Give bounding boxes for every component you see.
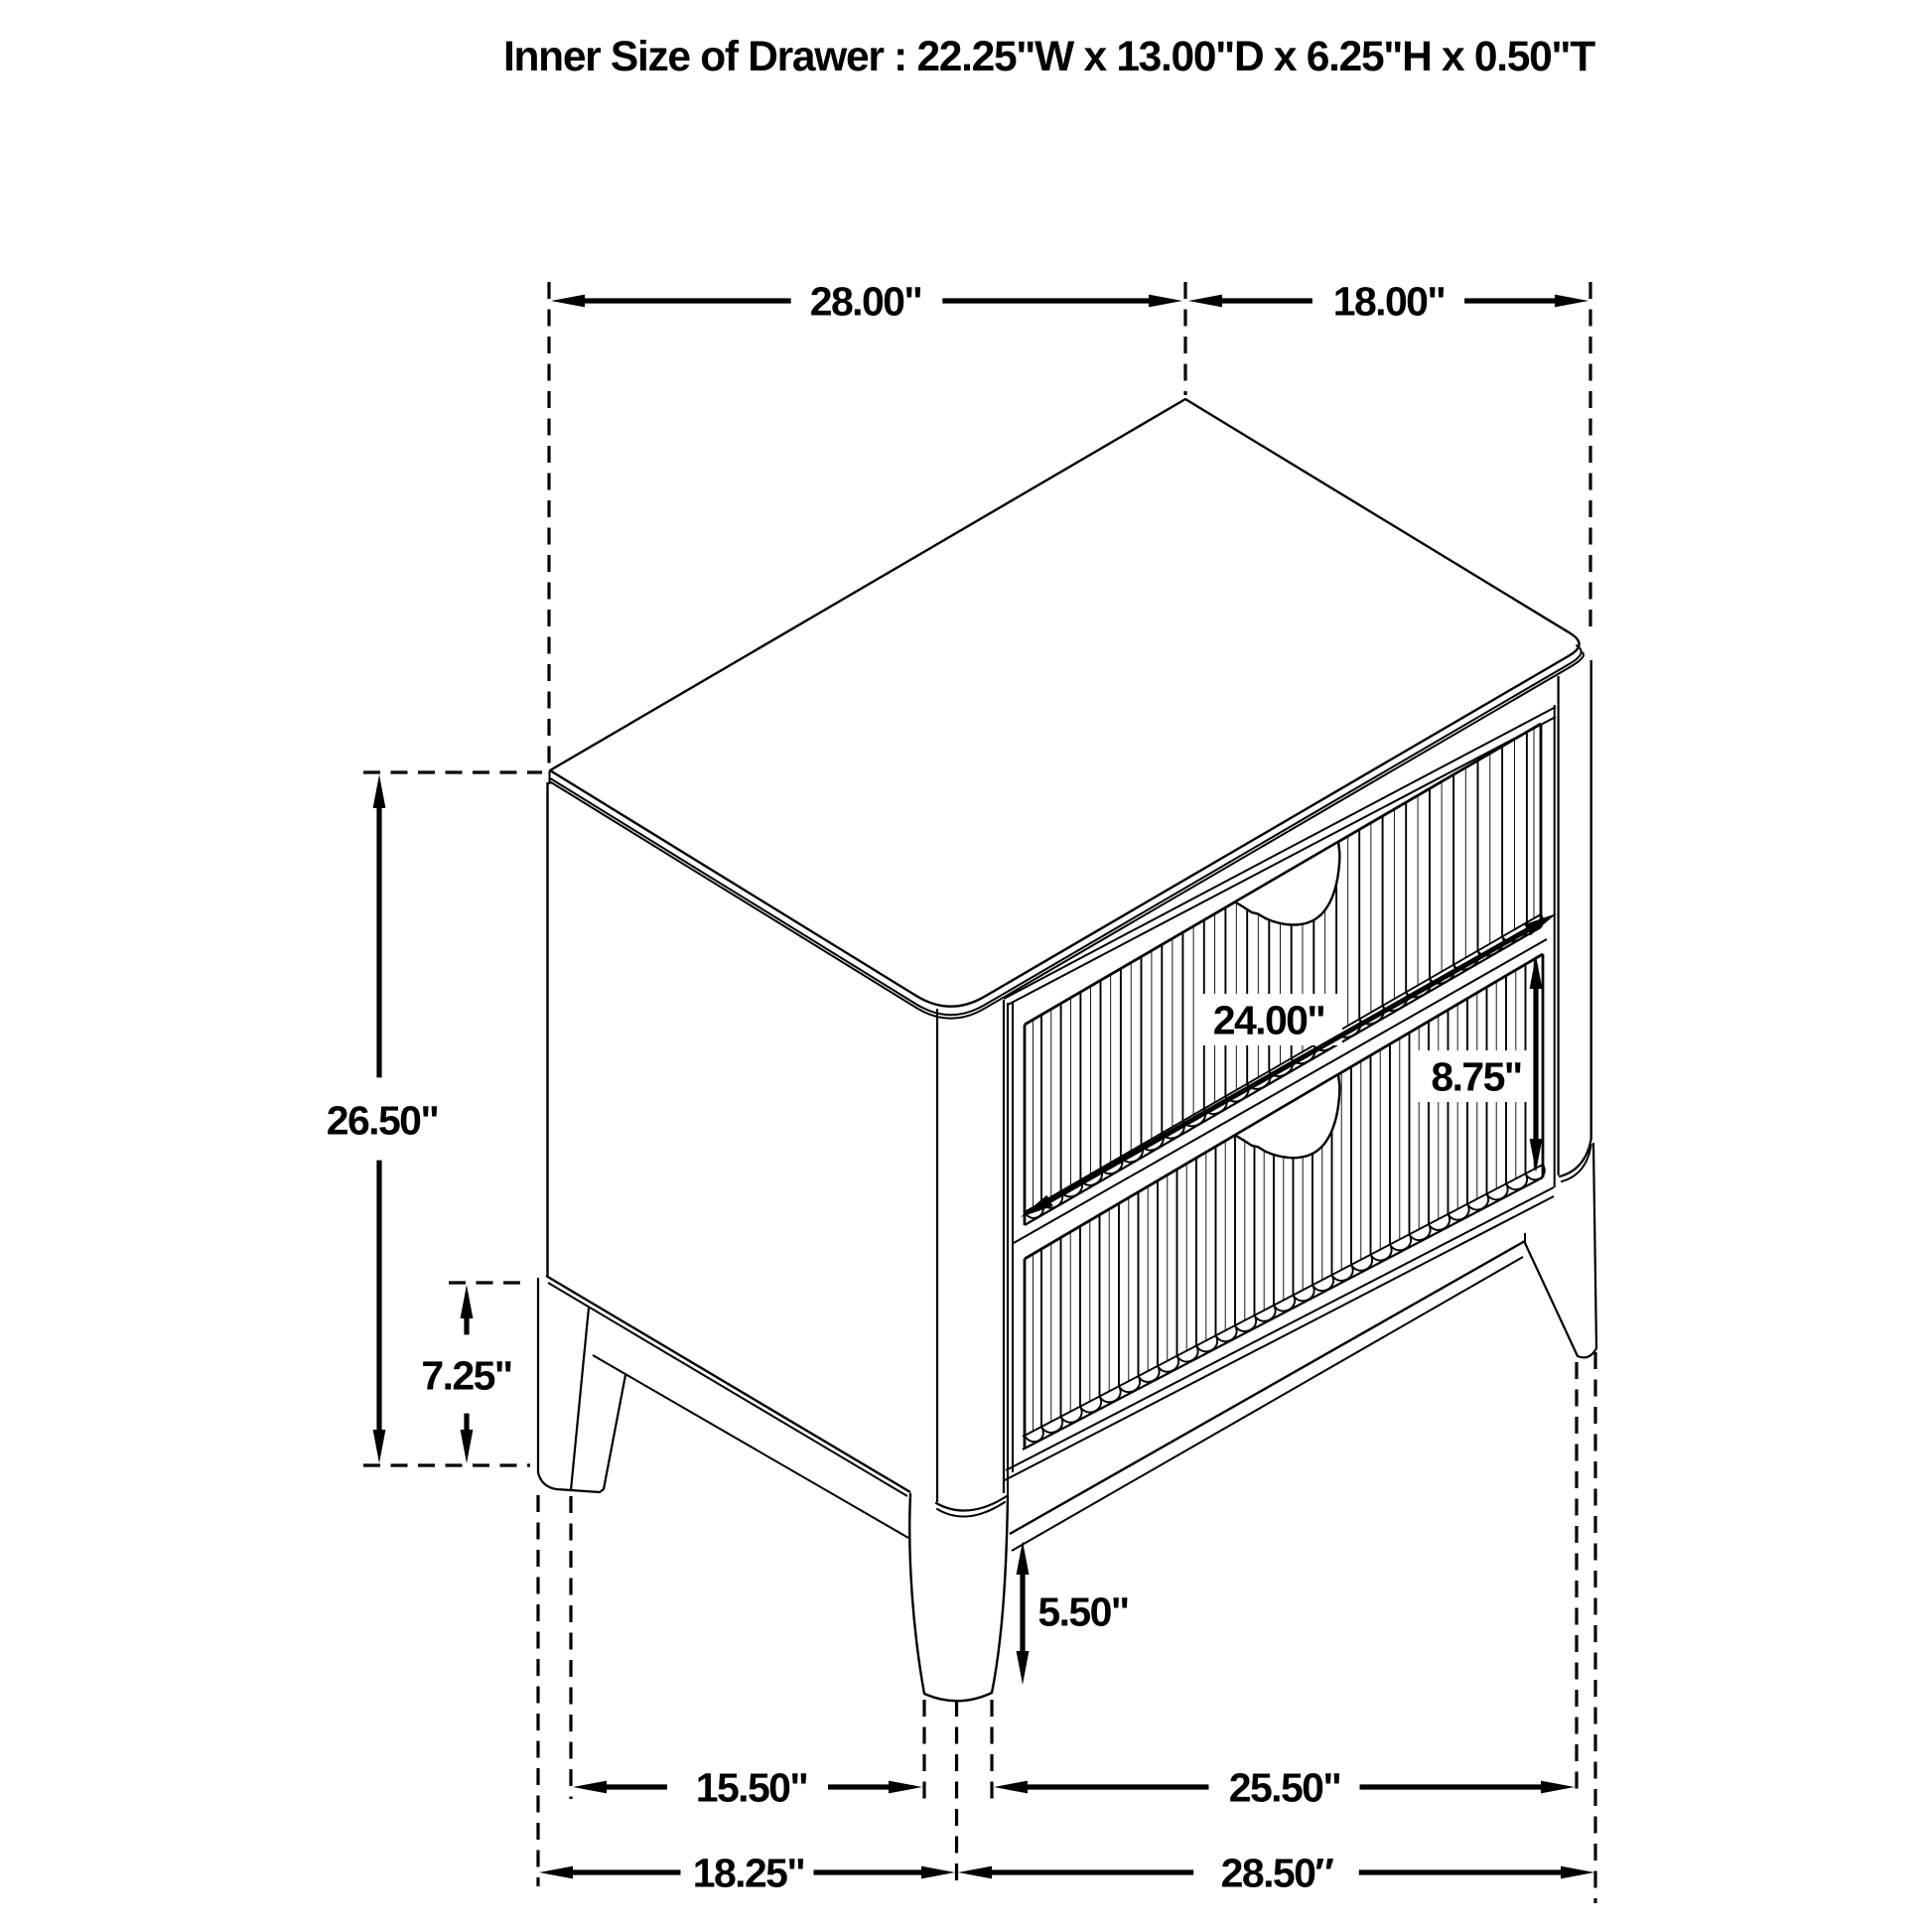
svg-text:5.50": 5.50" [1037, 1589, 1128, 1635]
svg-text:24.00": 24.00" [1213, 998, 1324, 1043]
svg-text:28.00": 28.00" [810, 279, 921, 325]
svg-text:18.00": 18.00" [1333, 279, 1445, 325]
svg-text:7.25": 7.25" [421, 1353, 511, 1399]
svg-text:25.50": 25.50" [1229, 1765, 1340, 1811]
svg-text:Inner Size of Drawer : 22.25"W: Inner Size of Drawer : 22.25"W x 13.00"D… [503, 34, 1595, 80]
svg-text:15.50": 15.50" [696, 1765, 807, 1811]
svg-text:18.25": 18.25" [693, 1851, 804, 1896]
svg-text:8.75": 8.75" [1431, 1054, 1521, 1100]
svg-text:26.50": 26.50" [327, 1098, 438, 1144]
svg-text:28.50″: 28.50″ [1221, 1851, 1334, 1896]
